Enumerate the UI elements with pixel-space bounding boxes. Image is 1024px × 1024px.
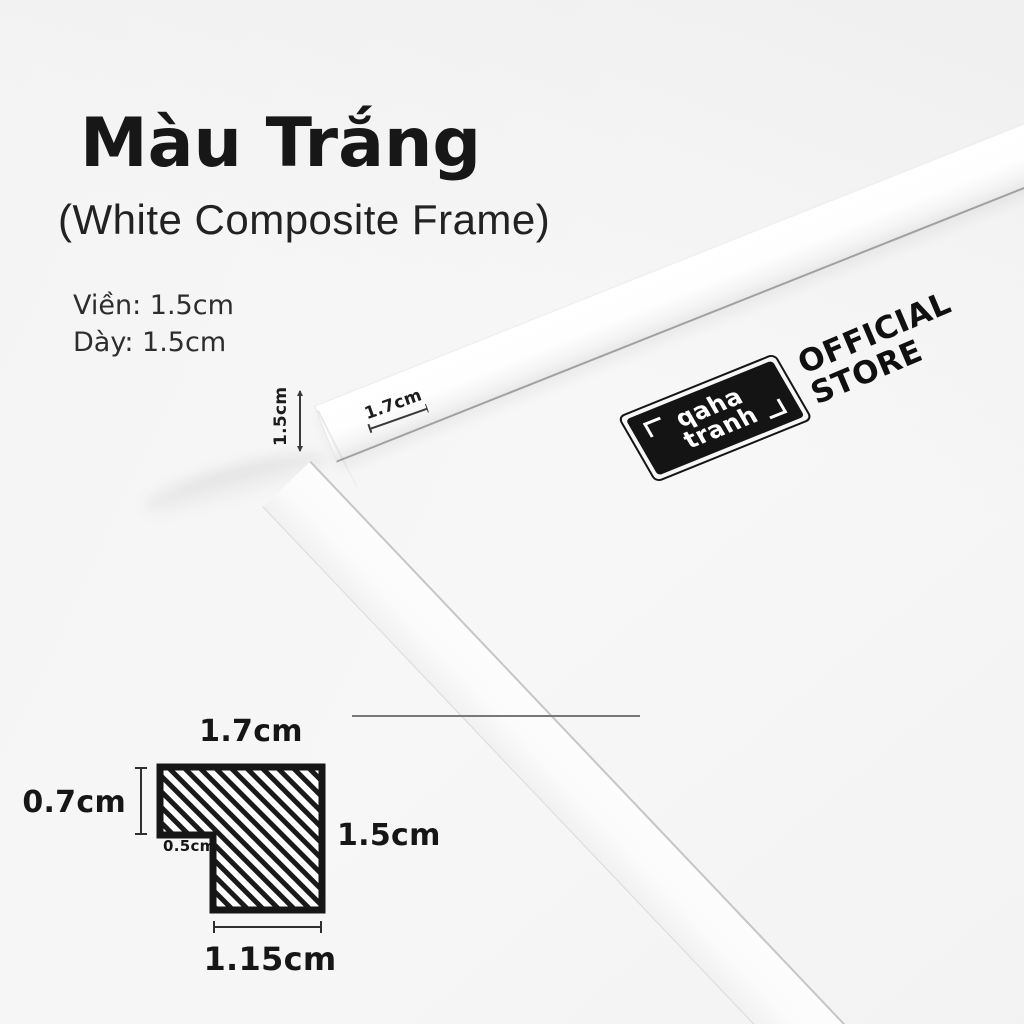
cross-section-top-width-label: 1.7cm bbox=[190, 714, 312, 749]
cross-section-step-width-label: 0.5cm bbox=[163, 837, 216, 855]
cross-section-bottom-width-label: 1.15cm bbox=[200, 940, 340, 978]
cross-section-left-dimension-line bbox=[140, 767, 142, 835]
cross-section-bottom-dimension-line bbox=[213, 926, 322, 928]
cross-section-diagram: 1.7cm 0.7cm 0.5cm 1.5cm 1.15cm bbox=[0, 0, 1024, 1024]
cross-section-upper-height-label: 0.7cm bbox=[14, 785, 126, 820]
product-spec-image: Màu Trắng (White Composite Frame) Viền: … bbox=[0, 0, 1024, 1024]
cross-section-right-height-label: 1.5cm bbox=[337, 818, 441, 853]
